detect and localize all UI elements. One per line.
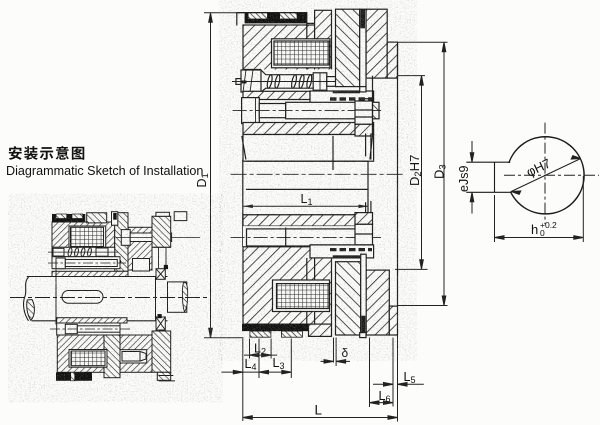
svg-text:0: 0 (540, 228, 545, 238)
svg-text:h: h (531, 222, 538, 237)
svg-text:eJs9: eJs9 (457, 166, 471, 192)
svg-text:δ: δ (342, 346, 349, 360)
svg-text:L: L (315, 403, 323, 418)
svg-text:D2H7: D2H7 (407, 155, 424, 186)
svg-text:Diagrammatic Sketch of Install: Diagrammatic Sketch of Installation (6, 164, 203, 178)
